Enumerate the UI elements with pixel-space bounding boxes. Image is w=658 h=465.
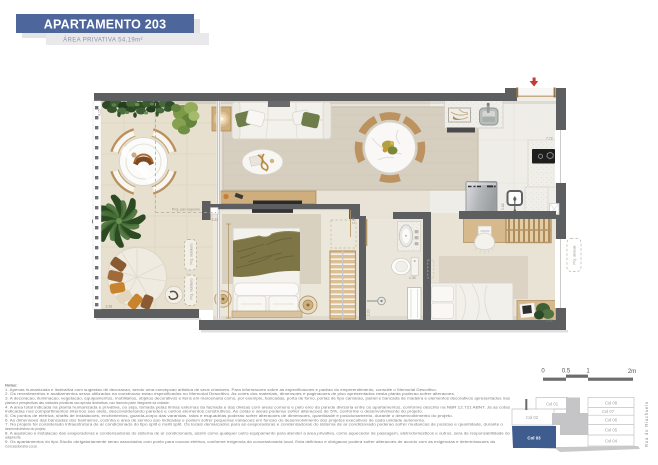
svg-text:Notas:: Notas: [5,383,17,388]
svg-text:Col 07: Col 07 [602,409,615,414]
svg-text:Concessionaria Local.: Concessionaria Local. [5,444,38,448]
svg-text:Proj. mobiliario: Proj. mobiliario [190,278,194,299]
svg-text:8. A aquisicao e instalacao da: 8. A aquisicao e instalacao das evaporad… [5,431,510,435]
svg-text:7. No projeto foi considerado: 7. No projeto foi considerado infraestru… [5,423,503,427]
svg-text:2.20: 2.20 [367,309,371,316]
svg-text:Proj. varanda: Proj. varanda [573,245,577,264]
svg-text:3.23: 3.23 [212,218,219,222]
svg-text:2.44: 2.44 [352,217,356,224]
svg-text:4.05: 4.05 [98,109,102,116]
svg-text:Col 04: Col 04 [605,439,618,444]
svg-text:2. Os revestimentos e acabamen: 2. Os revestimentos e acabamentos serao … [5,392,455,396]
svg-text:Col 03: Col 03 [527,436,541,441]
svg-text:Rua do Riachuelo: Rua do Riachuelo [644,401,649,447]
svg-text:Proj. pav superior: Proj. pav superior [172,208,201,212]
svg-text:Col 02: Col 02 [526,415,539,420]
svg-text:plantas e perspectivas das uni: plantas e perspectivas das unidades priv… [5,401,170,405]
svg-text:2.02: 2.02 [546,319,553,323]
svg-text:0.5: 0.5 [562,369,571,375]
svg-text:2.28: 2.28 [106,305,113,309]
svg-text:ÁREA PRIVATIVA 54,19m²: ÁREA PRIVATIVA 54,19m² [63,37,143,44]
svg-text:Col 05: Col 05 [605,428,618,433]
svg-text:Col 08: Col 08 [605,401,618,406]
svg-text:Col 06: Col 06 [605,418,618,423]
svg-text:APARTAMENTO 203: APARTAMENTO 203 [44,18,166,32]
svg-text:2m: 2m [628,369,636,375]
svg-text:Col 01: Col 01 [546,402,559,407]
svg-text:indicadas nos compartimentos i: indicadas nos compartimentos internos sa… [5,410,423,414]
svg-text:1.30: 1.30 [409,276,416,280]
svg-text:6. As dimensoes das bancadas d: 6. As dimensoes das bancadas dos banheir… [5,418,425,422]
svg-text:0.62: 0.62 [501,203,505,210]
svg-text:7.72: 7.72 [546,137,553,141]
svg-text:Proj. mobiliario: Proj. mobiliario [190,243,194,264]
svg-text:9. Os apartamentos do tipo Stu: 9. Os apartamentos do tipo Studio obriga… [5,440,495,444]
svg-text:adquirente.: adquirente. [5,436,22,440]
svg-text:desenvolvimento do projeto.: desenvolvimento do projeto. [5,427,46,431]
